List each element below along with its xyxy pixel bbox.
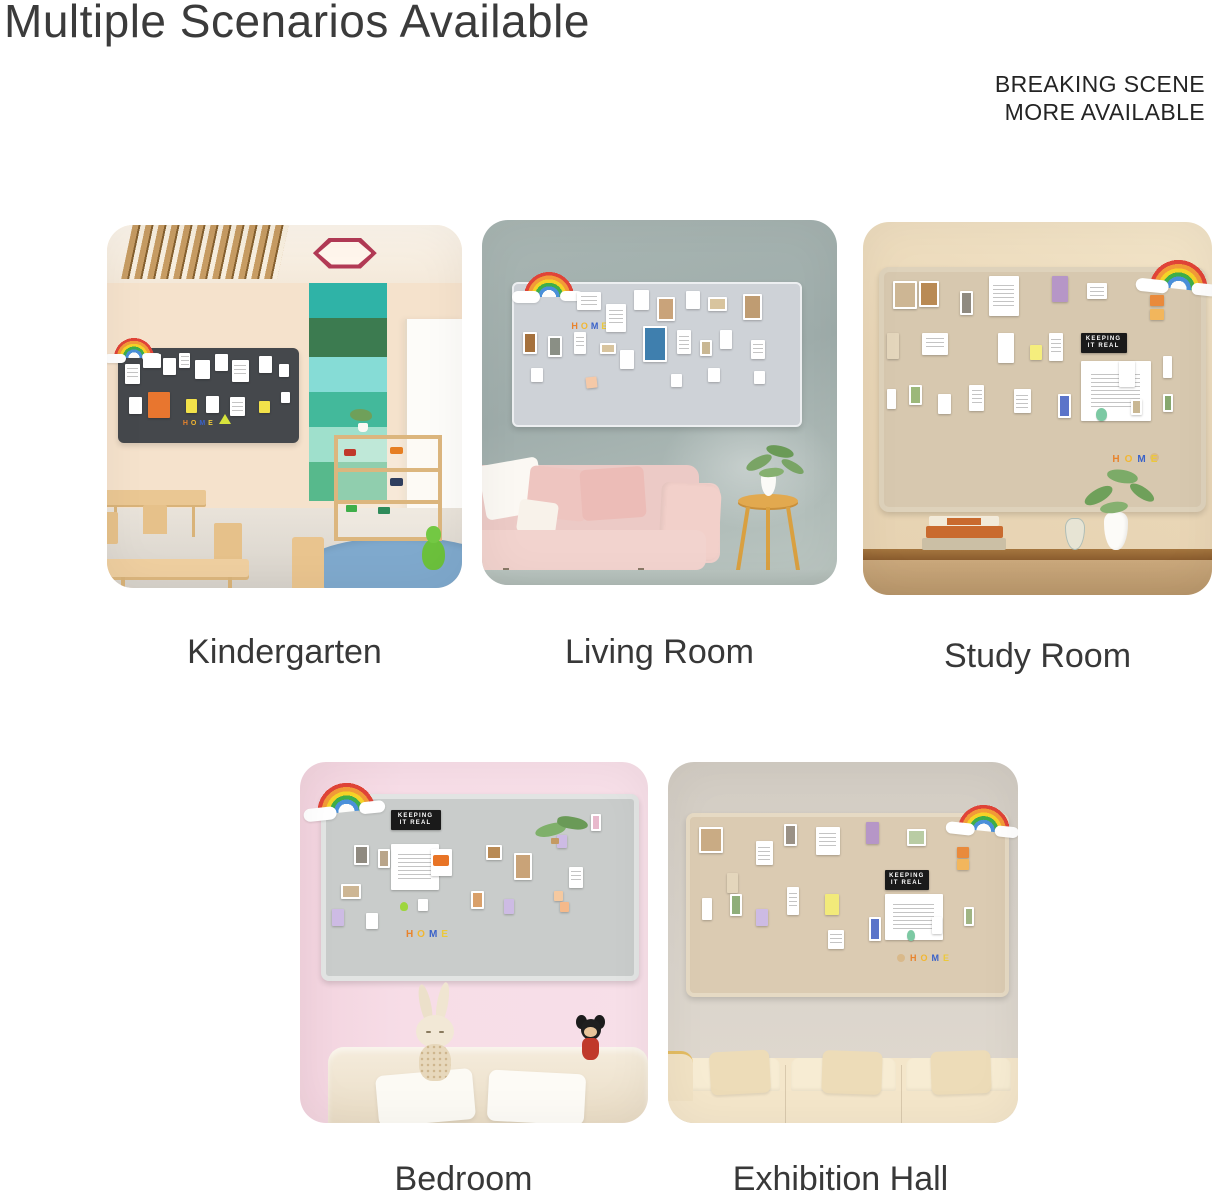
framed-picture (523, 332, 537, 354)
sofa-pillow (709, 1049, 771, 1095)
table-leg (192, 505, 195, 538)
kids-chair (292, 537, 324, 588)
sticky-note (186, 399, 197, 413)
pinned-photo (909, 385, 922, 405)
pinned-card (163, 358, 176, 375)
sofa-divider (901, 1065, 902, 1123)
scene-label-living-room: Living Room (482, 633, 837, 672)
pinned-card (281, 392, 290, 403)
pinned-card (1150, 295, 1164, 306)
sign-line: IT REAL (393, 820, 439, 827)
pinned-photo (1131, 399, 1142, 415)
pinned-card (332, 909, 344, 926)
kids-table (107, 490, 206, 505)
keeping-it-real-sign: KEEPINGIT REAL (391, 810, 441, 830)
toy-car (390, 478, 403, 486)
pinned-card (754, 371, 765, 384)
pinned-card (606, 304, 626, 332)
home-letter: M (591, 322, 599, 331)
home-letter: M (199, 420, 205, 427)
pinned-card (828, 930, 844, 949)
bunny-eye (426, 1031, 431, 1033)
mickey-plush (575, 1015, 606, 1062)
pinned-card (1052, 276, 1068, 302)
felt-board: KEEPINGIT REAL HOME (321, 794, 639, 981)
home-letter: M (932, 954, 940, 963)
pinned-card (751, 340, 765, 359)
book (926, 526, 1003, 537)
book (922, 538, 1006, 550)
felt-board: KEEPINGIT REAL HOME (879, 267, 1207, 512)
pinned-card (677, 330, 691, 354)
pinned-card (215, 354, 228, 371)
wood-badge (897, 954, 905, 962)
pinned-card (574, 332, 586, 354)
tree-sticker (907, 930, 915, 941)
home-letters: HOME (406, 930, 448, 940)
pinned-photo (548, 336, 562, 357)
tagline-line-2: MORE AVAILABLE (995, 98, 1205, 126)
pinned-card (206, 396, 219, 413)
toy-car (390, 447, 403, 454)
table-leg (228, 577, 232, 588)
pinned-photo (486, 845, 502, 860)
sofa-pillow (580, 466, 647, 521)
grid-calendar (569, 867, 583, 888)
sign-line: KEEPING (1083, 336, 1125, 343)
sign-line: IT REAL (887, 880, 927, 887)
sticky-note (585, 376, 597, 388)
home-letter: O (581, 322, 588, 331)
bunny-head (416, 1015, 454, 1048)
kids-chair (214, 523, 242, 559)
sofa-pillow (821, 1050, 882, 1095)
pinned-poster (514, 853, 532, 880)
bunny-body (419, 1044, 451, 1081)
pinned-photo (600, 343, 616, 354)
scene-label-study-room: Study Room (863, 637, 1212, 676)
pinned-photo-door (643, 326, 667, 362)
rainbow-sticker (524, 272, 574, 297)
pinned-card (1150, 309, 1164, 320)
desk-top (863, 549, 1212, 559)
felt-board: HOME (118, 348, 299, 442)
kid-figure (419, 526, 447, 570)
pinned-card (756, 841, 773, 865)
pinned-card (531, 368, 543, 382)
toy-car (344, 449, 356, 456)
home-letter: H (406, 930, 413, 940)
home-letters: HOME (910, 954, 949, 963)
sticky-note (554, 891, 563, 901)
scene-bedroom: KEEPINGIT REAL HOME (300, 762, 648, 1123)
toy-block (346, 505, 357, 512)
pinned-card (866, 822, 879, 844)
pinned-photo (907, 829, 926, 846)
home-letter: O (191, 420, 196, 427)
pinned-card (232, 360, 249, 382)
scene-label-bedroom: Bedroom (286, 1160, 641, 1199)
rainbow-sticker (1150, 257, 1211, 292)
pinned-photo (354, 845, 369, 865)
triangle-sticker (219, 414, 231, 424)
pinned-card (998, 333, 1014, 363)
pinned-card (591, 814, 601, 831)
sofa-seat (482, 530, 706, 570)
pinned-card (756, 909, 768, 926)
bunny-eye (439, 1031, 444, 1033)
pinned-card (922, 333, 948, 355)
home-letters: HOME (1112, 455, 1157, 465)
sofa-divider (785, 1065, 786, 1123)
pinned-card (1119, 361, 1135, 387)
shelf-bar (338, 500, 437, 504)
rainbow-sticker (315, 781, 376, 816)
scene-study-room: KEEPINGIT REAL HOME (863, 222, 1212, 595)
pinned-card (418, 899, 428, 911)
glass-vase (1065, 518, 1084, 550)
pinned-card (634, 290, 649, 310)
book-stack (922, 512, 1006, 549)
scene-label-exhibition-hall: Exhibition Hall (663, 1160, 1018, 1199)
kids-chair (143, 505, 168, 534)
home-letter: O (417, 930, 425, 940)
pinned-card (887, 333, 899, 359)
pinned-card (938, 394, 951, 414)
monster-sticker (400, 902, 408, 911)
bed-pillow (487, 1070, 587, 1123)
pinned-card (143, 354, 161, 368)
toy-block (378, 507, 390, 514)
felt-board: KEEPINGIT REAL HOME (686, 813, 1009, 998)
scene-living-room: HOME (482, 220, 837, 585)
pinned-photo (893, 281, 917, 309)
pinned-card (148, 392, 170, 418)
pinned-card (279, 364, 289, 377)
pinned-card (129, 397, 142, 414)
pinned-card (504, 899, 514, 914)
pinned-card (989, 276, 1019, 316)
kids-table (107, 559, 249, 577)
tagline: BREAKING SCENE MORE AVAILABLE (995, 70, 1205, 126)
shelf-bar (338, 468, 437, 472)
table-leg (766, 507, 770, 573)
rainbow-sticker (957, 802, 1011, 833)
home-letter: H (910, 954, 917, 963)
sticky-note (259, 401, 270, 413)
pinned-photo (708, 297, 727, 311)
sofa-arm (668, 1051, 693, 1101)
pinned-photo (341, 884, 361, 899)
pinned-photo-sofa (431, 849, 452, 876)
vase (1104, 512, 1128, 549)
toy-shelf (334, 435, 441, 541)
sofa-pillow (930, 1050, 991, 1095)
home-letter: H (183, 420, 188, 427)
pinned-card (195, 360, 210, 379)
figure-body (422, 539, 445, 569)
kids-chair (107, 512, 118, 545)
home-letter: E (208, 420, 213, 427)
pinned-photo (743, 294, 762, 320)
pinned-photo (784, 824, 797, 846)
plant-mount (551, 838, 559, 844)
felt-board: HOME (512, 282, 802, 427)
home-letters: HOME (571, 322, 607, 331)
pinned-card (708, 368, 720, 382)
home-letter: H (571, 322, 578, 331)
sticky-note (1030, 345, 1042, 360)
desk-front (863, 560, 1212, 595)
pinned-card (957, 859, 969, 870)
keeping-it-real-sign: KEEPINGIT REAL (885, 870, 929, 890)
home-letter: M (429, 930, 437, 940)
pinned-card (230, 397, 245, 416)
pinned-photo (730, 894, 742, 916)
pinned-card (125, 364, 140, 384)
mickey-face (584, 1027, 597, 1037)
keeping-it-real-sign: KEEPINGIT REAL (1081, 333, 1127, 353)
home-letter: E (1151, 455, 1158, 465)
sign-line: KEEPING (393, 813, 439, 820)
home-letters: HOME (183, 420, 213, 427)
pinned-card (887, 389, 896, 409)
pinned-card (727, 873, 738, 893)
pinned-card (577, 292, 601, 310)
pinned-photo (1163, 394, 1173, 412)
pinned-card (179, 353, 190, 368)
floor (482, 570, 837, 585)
pinned-card (816, 827, 840, 855)
sign-line: IT REAL (1083, 343, 1125, 350)
bunny-plush (408, 986, 464, 1083)
pinned-card (1163, 356, 1172, 378)
pinned-poster (1058, 394, 1071, 418)
pinned-card (1014, 389, 1031, 413)
wood-slats-ceiling (121, 225, 289, 279)
pinned-photo (964, 907, 974, 926)
pinned-photo (471, 891, 484, 909)
home-letter: H (1112, 455, 1119, 465)
home-letter: E (441, 930, 448, 940)
pinned-card (957, 847, 969, 858)
figure-head (426, 526, 440, 543)
mickey-body (582, 1038, 600, 1060)
home-letter: M (1137, 455, 1145, 465)
home-letter: O (1125, 455, 1133, 465)
product-scenarios-image: Multiple Scenarios Available BREAKING SC… (0, 0, 1225, 1200)
pinned-card (620, 350, 634, 369)
pinned-poster (869, 917, 881, 941)
pinned-photo (960, 291, 973, 315)
pinned-card (1087, 283, 1107, 299)
pinned-card (787, 887, 799, 915)
book-label (947, 518, 981, 525)
pinned-card (702, 898, 712, 920)
plant-pot (358, 423, 368, 432)
pinned-photo (700, 340, 712, 356)
pinned-card (932, 917, 942, 934)
pinned-card (969, 385, 984, 411)
page-title: Multiple Scenarios Available (4, 0, 590, 48)
scene-kindergarten: HOME (107, 225, 462, 588)
scene-exhibition-hall: KEEPINGIT REAL HOME (668, 762, 1018, 1123)
pinned-card (720, 330, 732, 349)
table-leg (121, 577, 125, 588)
sign-line: KEEPING (887, 873, 927, 880)
pinned-photo (657, 297, 675, 321)
scene-label-kindergarten: Kindergarten (107, 633, 462, 672)
pinned-card (1049, 333, 1063, 361)
pinned-card (366, 913, 378, 929)
pinned-card (671, 374, 682, 387)
pinned-card (686, 291, 700, 309)
orange-sofa-picture (433, 855, 449, 865)
home-letter: O (921, 954, 928, 963)
sticky-note (560, 902, 569, 912)
sticky-note (825, 894, 839, 915)
home-letter: E (943, 954, 949, 963)
tagline-line-1: BREAKING SCENE (995, 70, 1205, 98)
pinned-photo (699, 827, 723, 853)
pinned-photo (919, 281, 939, 307)
pinned-card (259, 356, 272, 373)
pinned-photo (378, 849, 390, 868)
